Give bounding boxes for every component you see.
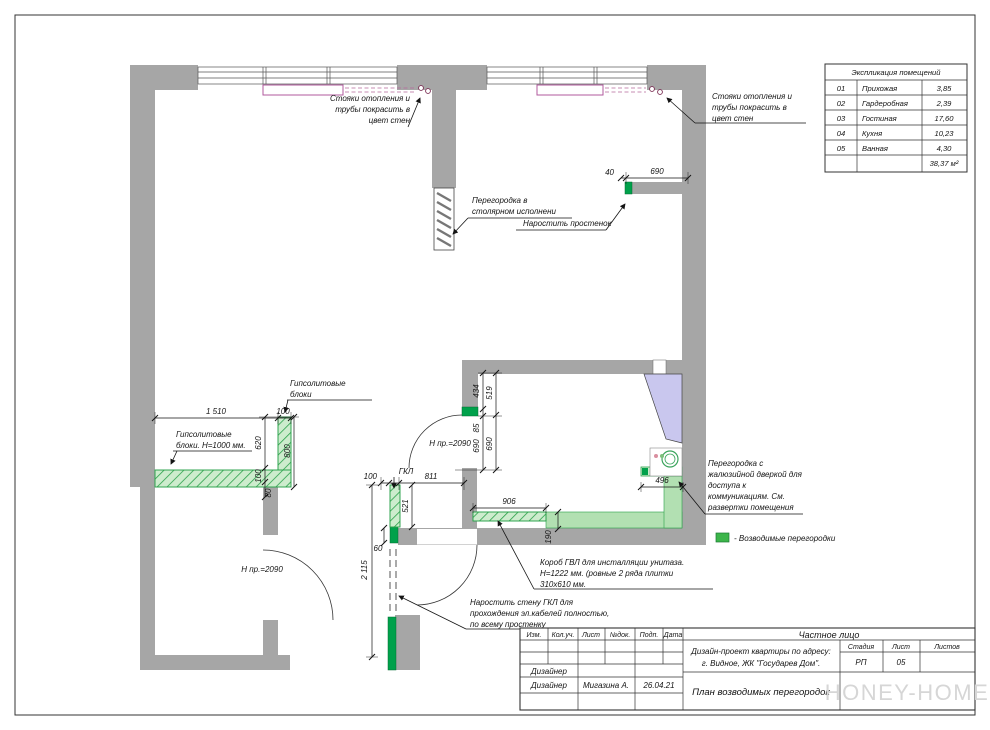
svg-text:03: 03 (837, 114, 846, 123)
svg-text:40: 40 (605, 168, 614, 177)
svg-text:519: 519 (485, 386, 494, 400)
floor-plan-drawing: 1 510 100 620 100 80 800 40 690 434 85 6… (0, 0, 990, 730)
svg-text:800: 800 (283, 444, 292, 458)
svg-text:Гостиная: Гостиная (862, 114, 897, 123)
svg-text:17,60: 17,60 (934, 114, 954, 123)
svg-text:Н=1222 мм. (ровные 2 ряда плит: Н=1222 мм. (ровные 2 ряда плитки (540, 569, 674, 578)
svg-text:690: 690 (472, 439, 481, 453)
wall-niche (653, 360, 666, 374)
designer-name: Мигазина А. (583, 681, 629, 690)
date-value: 26.04.21 (642, 681, 674, 690)
svg-text:496: 496 (655, 476, 669, 485)
svg-text:05: 05 (837, 144, 846, 153)
svg-text:310х610 мм.: 310х610 мм. (540, 580, 586, 589)
svg-text:цвет стен: цвет стен (712, 114, 754, 123)
svg-text:60: 60 (374, 544, 383, 553)
svg-text:цвет стен: цвет стен (369, 116, 411, 125)
explication-title: Экспликация помещений (852, 68, 942, 77)
svg-text:ГКЛ: ГКЛ (399, 467, 414, 476)
svg-text:коммуникациям. См.: коммуникациям. См. (708, 492, 785, 501)
drawing-sheet: 1 510 100 620 100 80 800 40 690 434 85 6… (0, 0, 990, 730)
legend: - Возводимые перегородки (716, 533, 836, 543)
svg-text:100: 100 (364, 472, 378, 481)
legend-label: - Возводимые перегородки (734, 534, 836, 543)
svg-text:10,23: 10,23 (934, 129, 954, 138)
radiator-right (537, 85, 603, 95)
annotation-extend-pier: Наростить простенок (523, 219, 613, 228)
svg-text:100: 100 (254, 469, 263, 483)
svg-text:434: 434 (472, 384, 481, 398)
door-height-center: Н пр.=2090 (429, 439, 471, 448)
svg-text:жалюзийной дверкой для: жалюзийной дверкой для (707, 470, 803, 479)
svg-text:85: 85 (472, 423, 481, 432)
washing-machine (650, 448, 682, 476)
svg-text:2,39: 2,39 (936, 99, 953, 108)
svg-text:690: 690 (485, 437, 494, 451)
svg-text:Гипсолитовые: Гипсолитовые (176, 430, 232, 439)
joinery-partition (434, 188, 454, 250)
col-list: Лист (581, 632, 600, 639)
svg-text:190: 190 (544, 530, 553, 544)
svg-text:блоки. Н=1000 мм.: блоки. Н=1000 мм. (176, 441, 246, 450)
svg-text:906: 906 (502, 497, 516, 506)
door-height-left: Н пр.=2090 (241, 565, 283, 574)
svg-text:Стояки отопления и: Стояки отопления и (712, 92, 793, 101)
sheet-label: Лист (891, 644, 910, 651)
svg-text:Прихожая: Прихожая (862, 84, 897, 93)
svg-text:блоки: блоки (290, 390, 312, 399)
svg-text:Наростить стену ГКЛ для: Наростить стену ГКЛ для (470, 598, 574, 607)
client-name: Частное лицо (799, 630, 860, 640)
sheets-label: Листов (933, 644, 960, 651)
svg-text:Короб ГВЛ для инсталляции унит: Короб ГВЛ для инсталляции унитаза. (540, 558, 684, 567)
svg-text:Перегородка в: Перегородка в (472, 196, 527, 205)
svg-text:3,85: 3,85 (937, 84, 953, 93)
sheet-value: 05 (897, 658, 906, 667)
legend-swatch (716, 533, 729, 542)
svg-text:столярном исполнени: столярном исполнени (472, 207, 557, 216)
designer-role-1: Дизайнер (530, 667, 567, 676)
svg-text:Гипсолитовые: Гипсолитовые (290, 379, 346, 388)
svg-text:100: 100 (276, 407, 290, 416)
svg-text:04: 04 (837, 129, 845, 138)
svg-text:Перегородка с: Перегородка с (708, 459, 763, 468)
svg-text:2 115: 2 115 (360, 560, 369, 581)
window-right (487, 67, 647, 84)
svg-text:690: 690 (650, 167, 664, 176)
svg-text:трубы покрасить в: трубы покрасить в (335, 105, 410, 114)
door-opening-bathroom (417, 529, 477, 545)
watermark: HONEY-HOME (825, 680, 990, 705)
designer-role-2: Дизайнер (530, 681, 567, 690)
svg-text:4,30: 4,30 (937, 144, 953, 153)
stage-value: РП (855, 658, 866, 667)
svg-text:80: 80 (264, 488, 273, 497)
svg-text:прохождения эл.кабелей полност: прохождения эл.кабелей полностью, (470, 609, 609, 618)
svg-text:развертки помещения: развертки помещения (707, 503, 794, 512)
svg-text:трубы покрасить в: трубы покрасить в (712, 103, 787, 112)
project-address-2: г. Видное, ЖК "Государев Дом". (702, 659, 821, 668)
svg-text:521: 521 (401, 499, 410, 512)
title-block: Изм. Кол.уч. Лист №док. Подп. Дата Частн… (520, 628, 989, 710)
explication-table: Экспликация помещений 01 Прихожая 3,85 0… (825, 64, 967, 172)
col-data: Дата (663, 632, 683, 639)
stage-label: Стадия (848, 643, 874, 651)
svg-text:доступа к: доступа к (708, 481, 747, 490)
svg-text:Стояки отопления и: Стояки отопления и (330, 94, 411, 103)
col-podp: Подп. (640, 631, 659, 639)
svg-text:Ванная: Ванная (862, 144, 888, 153)
svg-text:01: 01 (837, 84, 845, 93)
svg-text:Гардеробная: Гардеробная (862, 99, 908, 108)
col-koluch: Кол.уч. (552, 632, 575, 639)
project-address-1: Дизайн-проект квартиры по адресу: (690, 647, 830, 656)
svg-text:Кухня: Кухня (862, 129, 882, 138)
drawing-title: План возводимых перегородок (692, 687, 830, 698)
explication-total: 38,37 м² (930, 159, 959, 168)
svg-text:02: 02 (837, 99, 846, 108)
svg-text:1 510: 1 510 (206, 407, 227, 416)
col-ndok: №док. (610, 631, 631, 639)
col-izm: Изм. (527, 632, 542, 639)
window-left (198, 67, 397, 84)
svg-text:620: 620 (254, 436, 263, 450)
svg-text:811: 811 (425, 472, 438, 481)
